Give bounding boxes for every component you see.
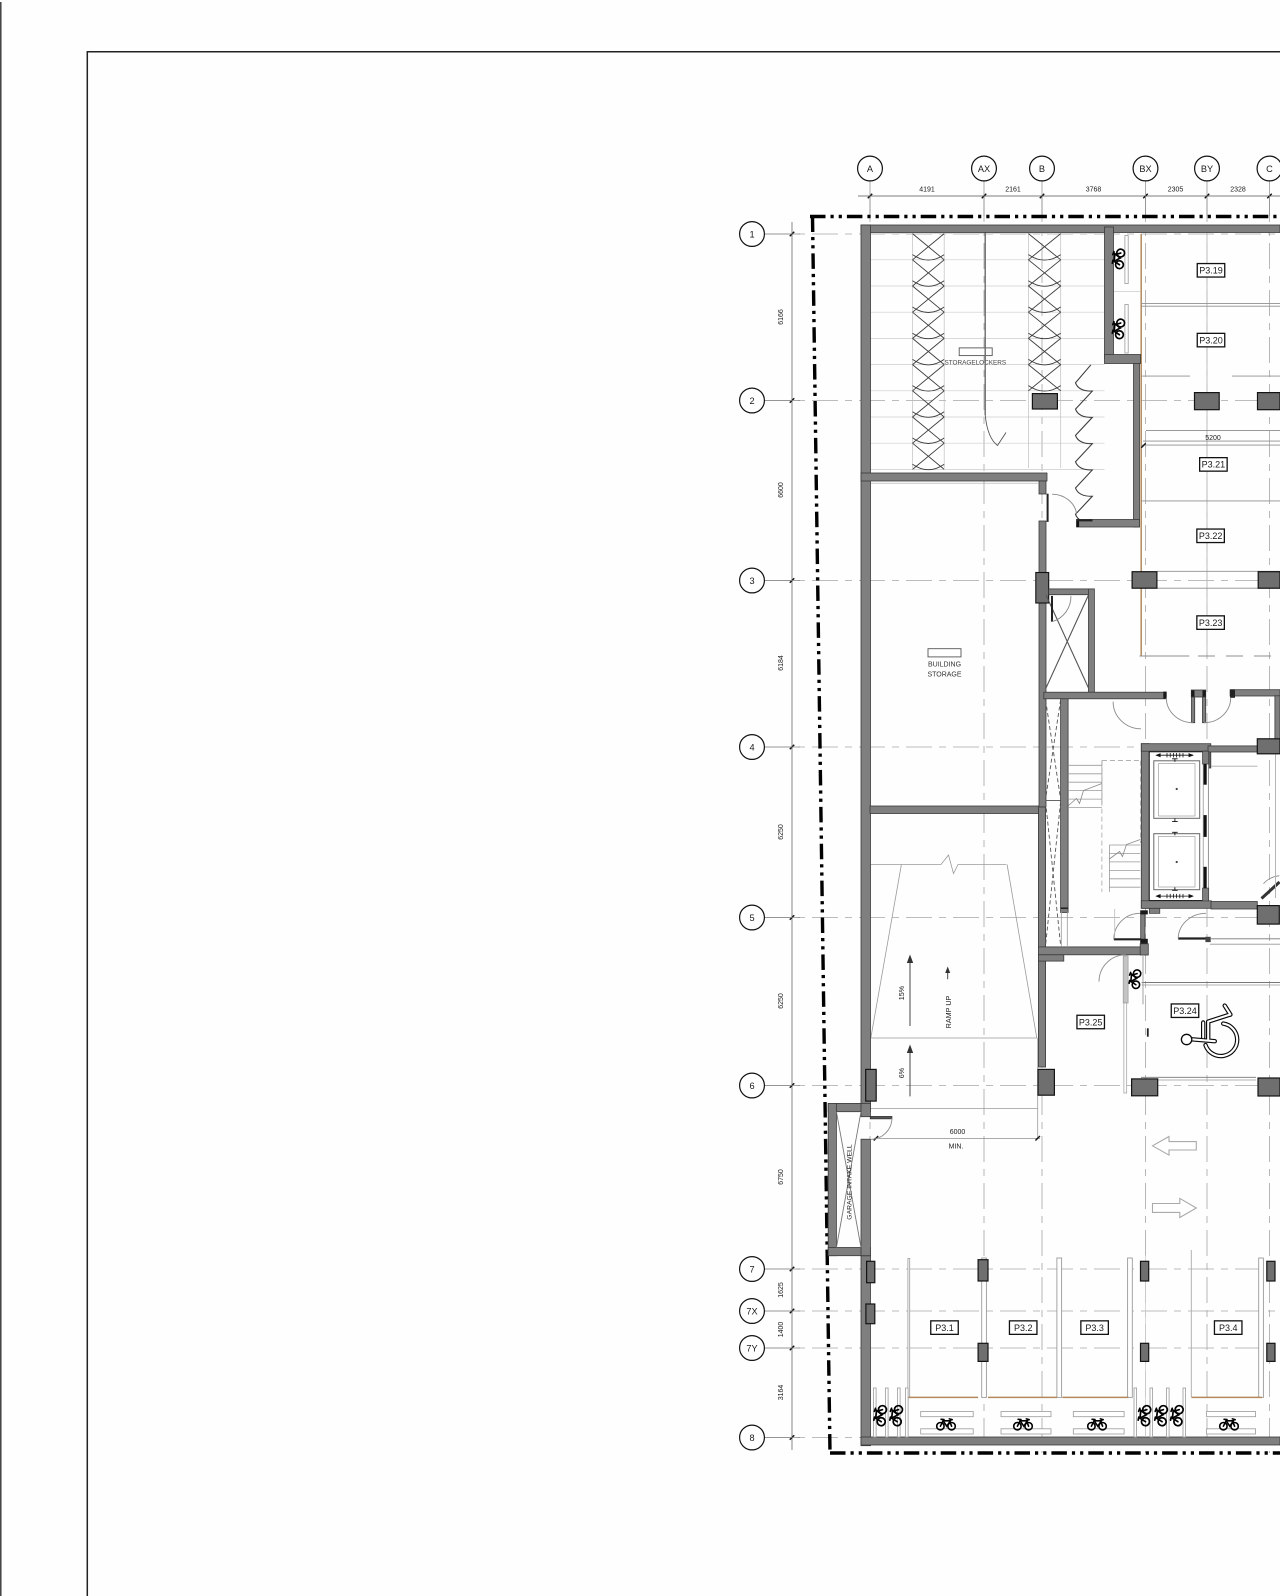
svg-text:RAMP UP: RAMP UP bbox=[944, 995, 953, 1028]
svg-text:2: 2 bbox=[749, 396, 754, 406]
svg-text:P3.19: P3.19 bbox=[1199, 266, 1223, 276]
svg-text:6250: 6250 bbox=[778, 824, 785, 840]
svg-text:P3.1: P3.1 bbox=[935, 1323, 954, 1333]
svg-text:B: B bbox=[1039, 164, 1045, 174]
svg-text:2305: 2305 bbox=[1168, 187, 1184, 194]
svg-text:7X: 7X bbox=[746, 1306, 757, 1316]
svg-text:P3.24: P3.24 bbox=[1173, 1006, 1197, 1016]
svg-text:4: 4 bbox=[749, 742, 754, 752]
svg-text:5200: 5200 bbox=[1205, 435, 1221, 442]
svg-text:6250: 6250 bbox=[778, 993, 785, 1009]
svg-text:P3.25: P3.25 bbox=[1079, 1017, 1103, 1027]
svg-text:8: 8 bbox=[749, 1433, 754, 1443]
svg-text:P3.23: P3.23 bbox=[1199, 618, 1223, 628]
svg-text:P3.3: P3.3 bbox=[1085, 1323, 1104, 1333]
svg-text:1400: 1400 bbox=[778, 1322, 785, 1338]
svg-text:P3.22: P3.22 bbox=[1199, 531, 1223, 541]
svg-text:A: A bbox=[867, 164, 874, 174]
svg-text:2161: 2161 bbox=[1005, 187, 1021, 194]
svg-text:6000: 6000 bbox=[950, 1129, 966, 1136]
svg-text:15%: 15% bbox=[897, 985, 906, 1000]
svg-text:6: 6 bbox=[749, 1081, 754, 1091]
svg-text:STORAGELOCKERS: STORAGELOCKERS bbox=[944, 359, 1006, 366]
svg-text:BX: BX bbox=[1139, 164, 1151, 174]
svg-text:3: 3 bbox=[749, 576, 754, 586]
svg-text:BUILDING: BUILDING bbox=[928, 662, 961, 669]
svg-text:P3.21: P3.21 bbox=[1202, 460, 1226, 470]
svg-text:P3.20: P3.20 bbox=[1199, 335, 1223, 345]
svg-text:6184: 6184 bbox=[778, 655, 785, 671]
svg-text:AX: AX bbox=[978, 164, 990, 174]
svg-text:6%: 6% bbox=[897, 1067, 906, 1078]
svg-text:P3.4: P3.4 bbox=[1219, 1323, 1238, 1333]
svg-text:7: 7 bbox=[749, 1264, 754, 1274]
svg-text:BY: BY bbox=[1201, 164, 1213, 174]
svg-text:C: C bbox=[1266, 164, 1273, 174]
svg-text:7Y: 7Y bbox=[746, 1343, 757, 1353]
svg-text:6750: 6750 bbox=[778, 1169, 785, 1185]
svg-text:3768: 3768 bbox=[1086, 187, 1102, 194]
svg-text:5: 5 bbox=[749, 913, 754, 923]
svg-text:P3.2: P3.2 bbox=[1014, 1323, 1033, 1333]
svg-text:6600: 6600 bbox=[778, 482, 785, 498]
svg-text:6166: 6166 bbox=[778, 309, 785, 325]
svg-text:STORAGE: STORAGE bbox=[927, 672, 961, 679]
svg-text:2328: 2328 bbox=[1230, 187, 1246, 194]
svg-text:MIN.: MIN. bbox=[949, 1144, 964, 1151]
svg-text:GARAGE INTAKE WELL: GARAGE INTAKE WELL bbox=[847, 1144, 854, 1220]
svg-text:1625: 1625 bbox=[778, 1282, 785, 1298]
svg-text:3164: 3164 bbox=[778, 1385, 785, 1401]
svg-text:1: 1 bbox=[749, 229, 754, 239]
svg-text:4191: 4191 bbox=[919, 187, 935, 194]
